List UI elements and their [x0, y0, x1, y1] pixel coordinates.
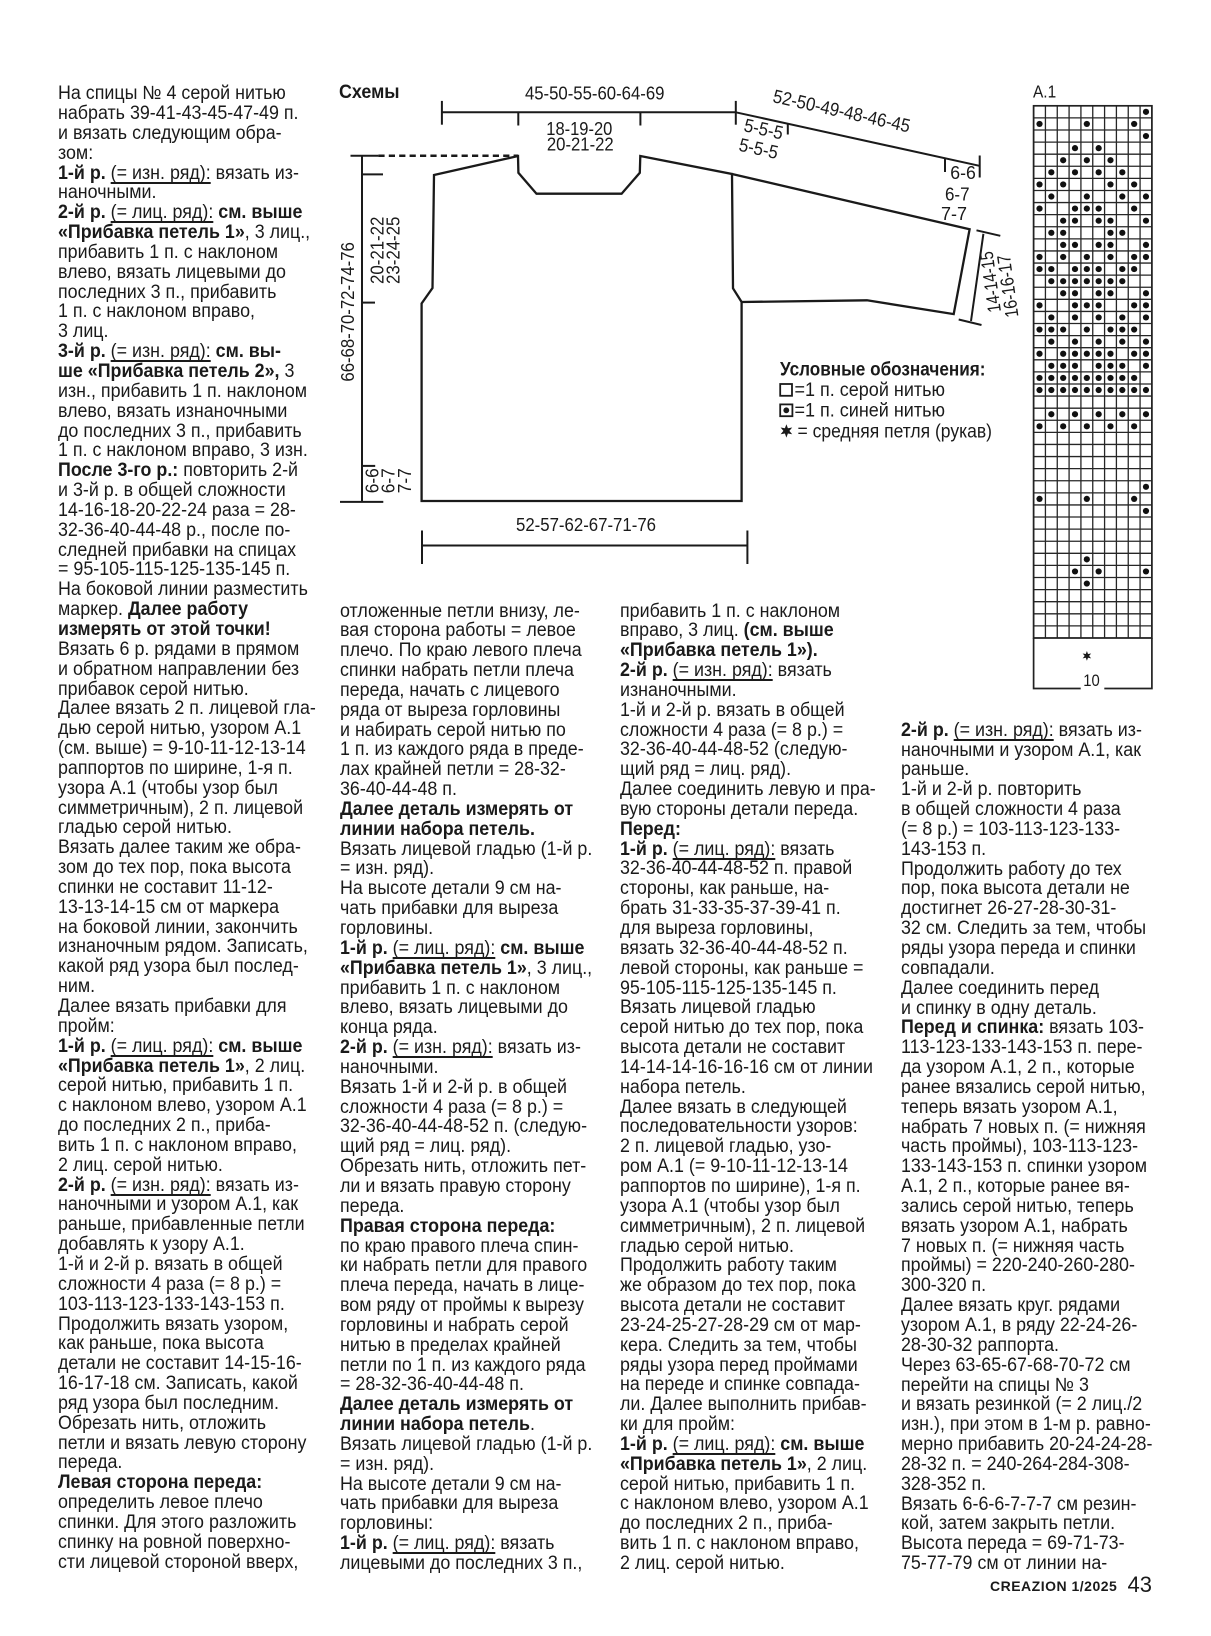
svg-text:= средняя петля (рукав): = средняя петля (рукав)	[798, 422, 993, 443]
svg-text:Условные обозначения:: Условные обозначения:	[780, 359, 986, 380]
svg-text:7-7: 7-7	[394, 468, 415, 493]
svg-text:52-50-49-48-46-45: 52-50-49-48-46-45	[771, 85, 912, 136]
svg-text:=1 п. серой нитью: =1 п. серой нитью	[795, 380, 946, 401]
svg-text:6-6: 6-6	[950, 162, 976, 183]
svg-text:23-24-25: 23-24-25	[382, 217, 403, 284]
svg-text:66-68-70-72-74-76: 66-68-70-72-74-76	[337, 242, 358, 381]
svg-text:10: 10	[1083, 672, 1100, 690]
svg-text:45-50-55-60-64-69: 45-50-55-60-64-69	[525, 83, 665, 104]
svg-text:20-21-22: 20-21-22	[547, 133, 614, 154]
svg-text:6-7: 6-7	[945, 183, 970, 204]
svg-text:A.1: A.1	[1033, 82, 1056, 102]
svg-text:=1 п. синей нитью: =1 п. синей нитью	[795, 401, 946, 422]
svg-text:7-7: 7-7	[941, 203, 967, 224]
svg-text:52-57-62-67-71-76: 52-57-62-67-71-76	[516, 514, 656, 535]
